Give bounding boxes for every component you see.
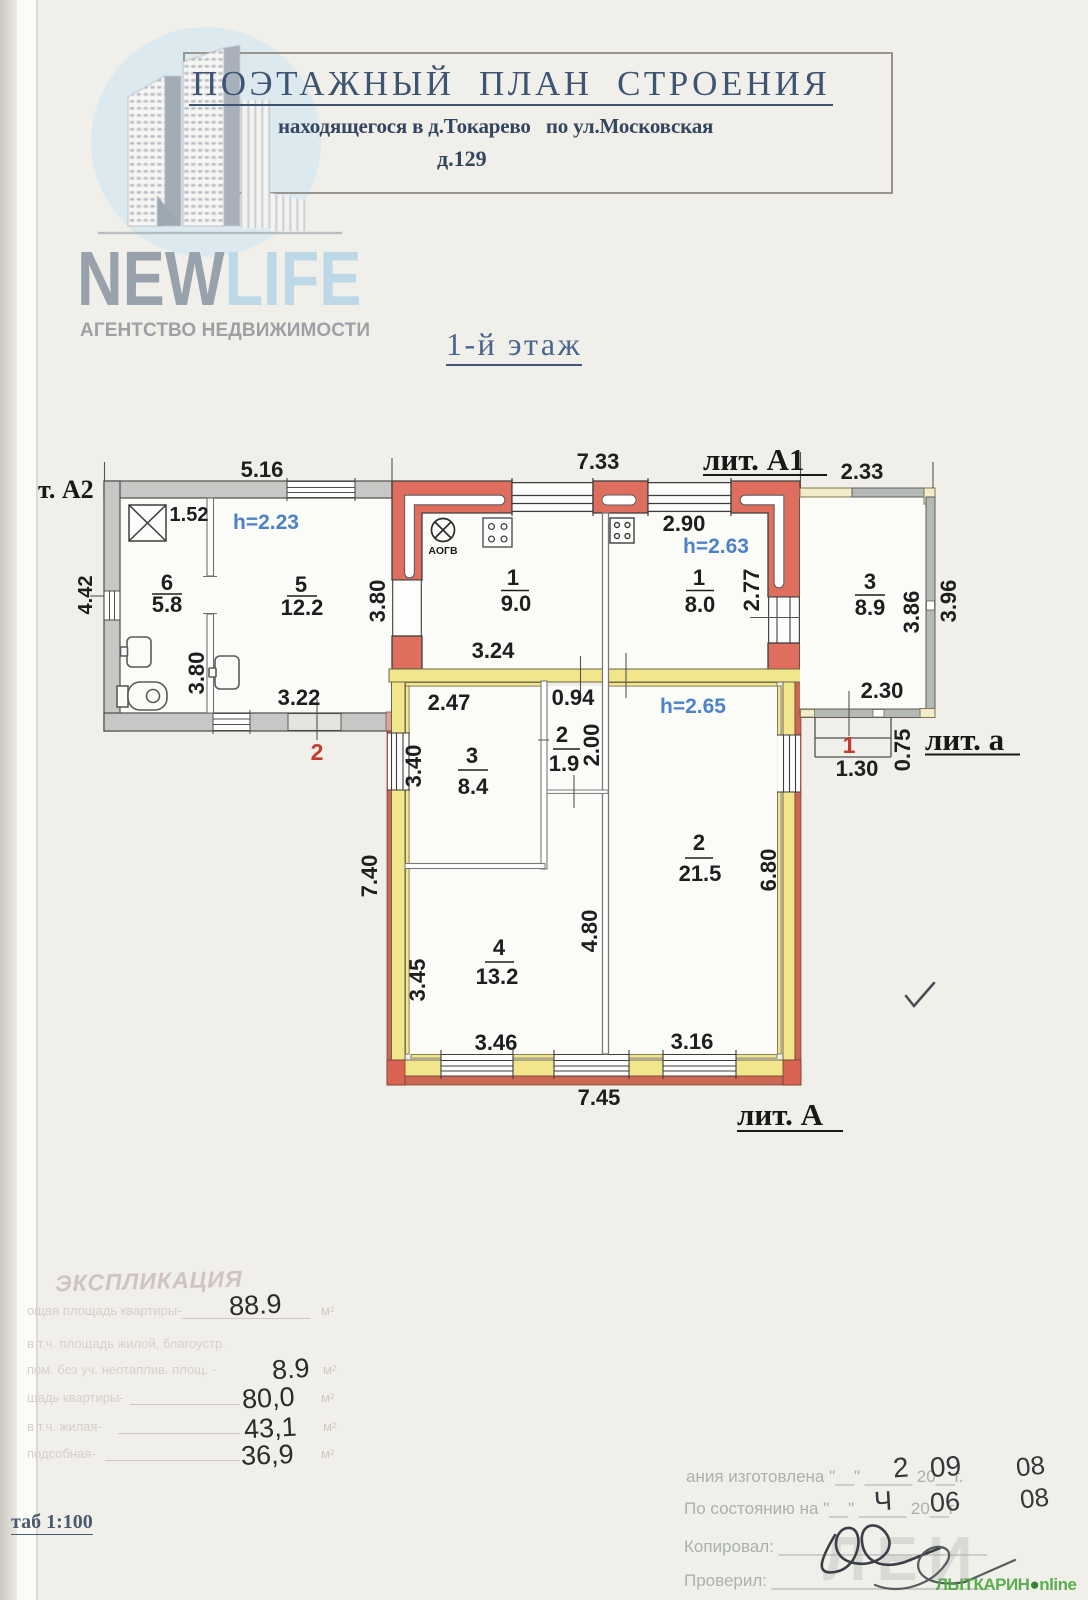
svg-text:2.77: 2.77: [739, 569, 764, 612]
svg-text:0.94: 0.94: [552, 685, 596, 710]
svg-text:лит. А: лит. А: [737, 1097, 824, 1132]
svg-text:3.45: 3.45: [405, 959, 430, 1002]
svg-text:т. А2: т. А2: [38, 475, 94, 504]
svg-text:1: 1: [507, 565, 519, 590]
svg-text:2.00: 2.00: [579, 724, 604, 767]
svg-text:3.40: 3.40: [401, 745, 426, 788]
svg-text:h=2.65: h=2.65: [660, 695, 726, 718]
svg-text:1.52: 1.52: [170, 504, 209, 526]
svg-text:7.40: 7.40: [357, 855, 382, 898]
svg-text:2.90: 2.90: [663, 511, 706, 536]
svg-text:8.0: 8.0: [685, 592, 716, 617]
svg-text:2.30: 2.30: [861, 678, 904, 703]
svg-text:1.9: 1.9: [549, 751, 580, 776]
svg-text:2.33: 2.33: [841, 459, 884, 484]
svg-text:3.96: 3.96: [936, 580, 961, 623]
svg-text:3.24: 3.24: [472, 638, 516, 663]
svg-text:3.16: 3.16: [671, 1029, 714, 1054]
svg-text:7.45: 7.45: [578, 1085, 621, 1110]
svg-text:3.86: 3.86: [899, 591, 924, 634]
svg-text:2: 2: [311, 739, 324, 765]
svg-text:8.4: 8.4: [458, 774, 489, 799]
svg-text:1: 1: [693, 565, 705, 590]
svg-text:12.2: 12.2: [281, 595, 324, 620]
svg-text:0.75: 0.75: [890, 729, 915, 772]
svg-text:2.47: 2.47: [428, 690, 471, 715]
svg-text:21.5: 21.5: [679, 861, 722, 886]
svg-text:4: 4: [493, 935, 506, 960]
svg-text:4.80: 4.80: [577, 910, 602, 953]
svg-text:5.16: 5.16: [241, 457, 284, 482]
svg-text:3.46: 3.46: [475, 1030, 518, 1055]
svg-text:2: 2: [556, 722, 568, 747]
svg-text:7.33: 7.33: [577, 449, 620, 474]
svg-text:лит. А1: лит. А1: [703, 442, 805, 477]
svg-text:1: 1: [843, 732, 856, 758]
svg-text:13.2: 13.2: [476, 964, 519, 989]
svg-text:h=2.63: h=2.63: [683, 535, 749, 558]
svg-text:3.22: 3.22: [278, 685, 321, 710]
svg-text:5: 5: [295, 572, 307, 597]
svg-text:8.9: 8.9: [855, 595, 886, 620]
svg-text:3: 3: [466, 743, 478, 768]
svg-text:АОГВ: АОГВ: [428, 545, 458, 557]
svg-text:h=2.23: h=2.23: [233, 511, 299, 534]
svg-text:3: 3: [864, 569, 876, 594]
svg-text:3.80: 3.80: [184, 652, 209, 695]
svg-text:4.42: 4.42: [75, 576, 97, 615]
svg-text:5.8: 5.8: [152, 592, 183, 617]
svg-text:3.80: 3.80: [365, 580, 390, 623]
svg-text:лит. а: лит. а: [925, 722, 1005, 757]
svg-text:6.80: 6.80: [756, 849, 781, 892]
svg-text:2: 2: [693, 830, 705, 855]
svg-text:1.30: 1.30: [836, 756, 879, 781]
svg-text:9.0: 9.0: [501, 591, 532, 616]
